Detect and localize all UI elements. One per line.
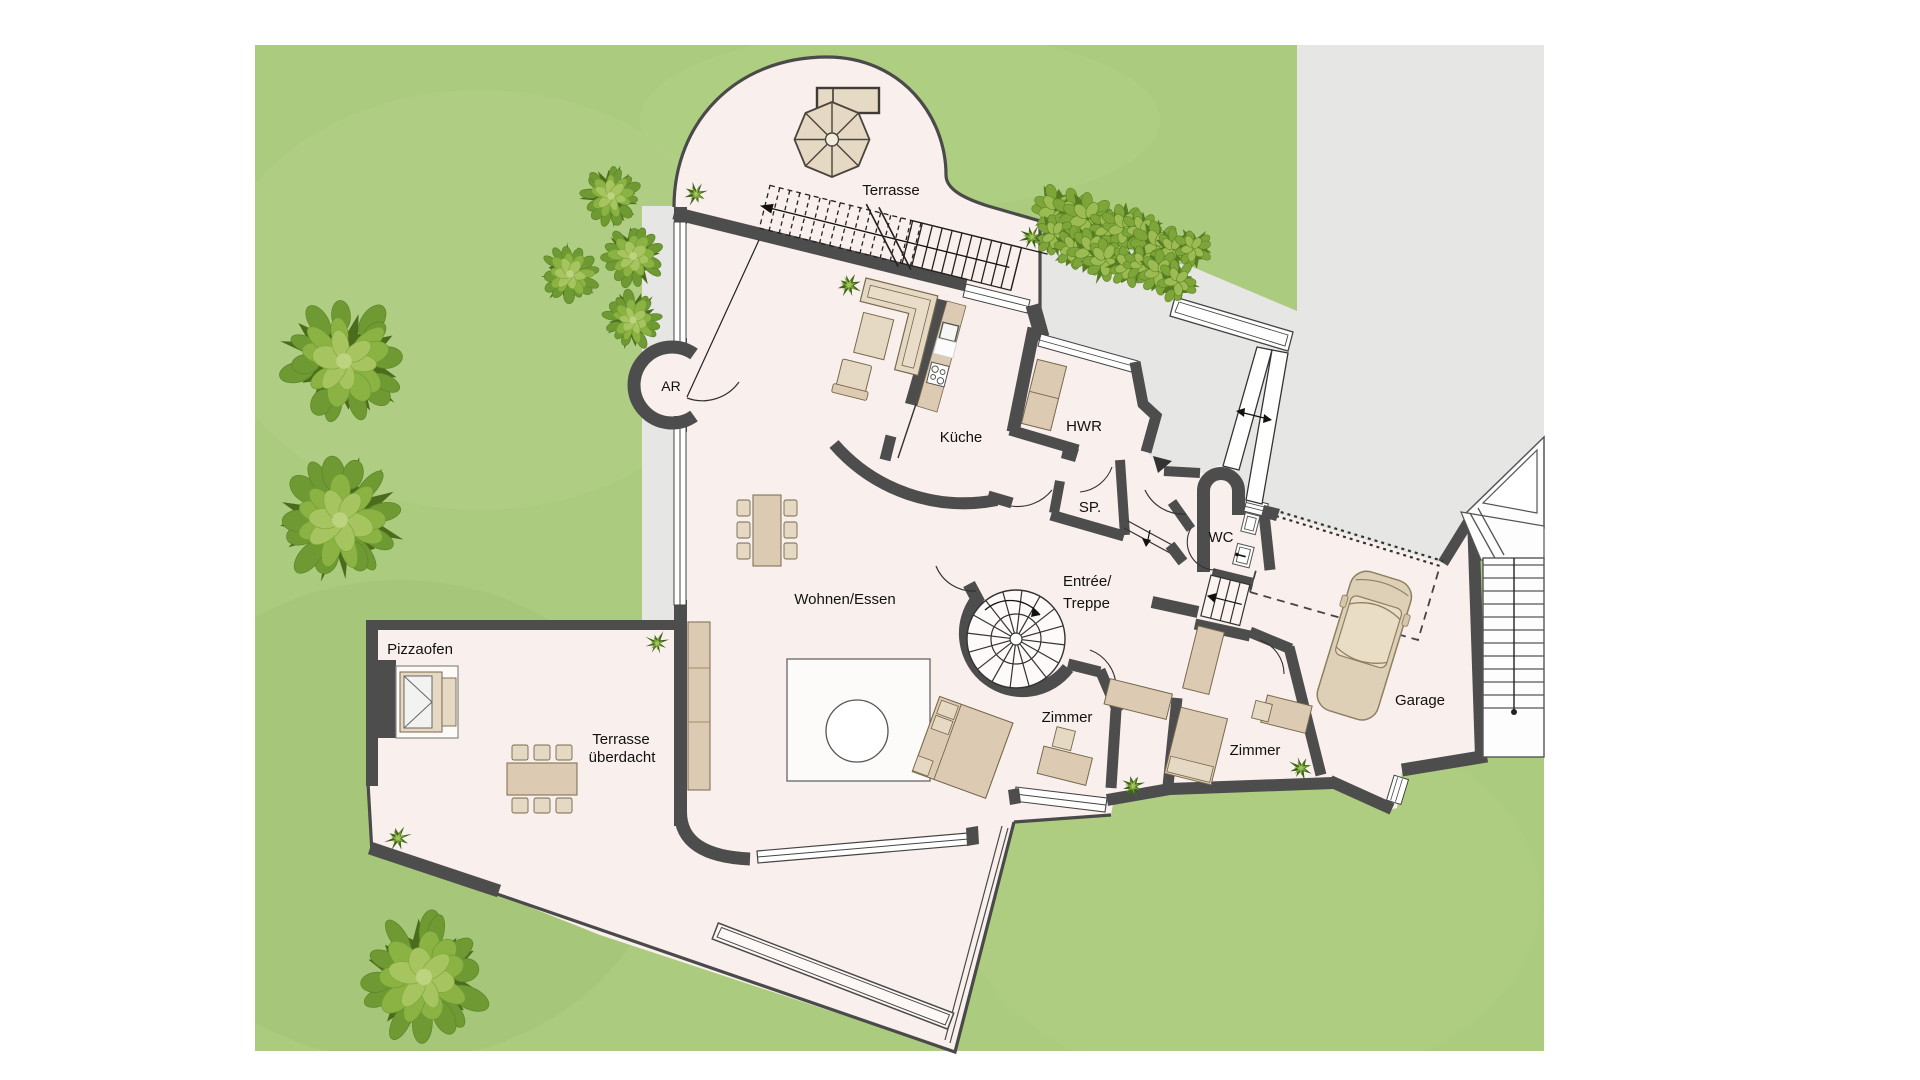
svg-text:Treppe: Treppe [1063, 595, 1110, 612]
svg-text:Wohnen/Essen: Wohnen/Essen [794, 591, 895, 608]
svg-text:Zimmer: Zimmer [1230, 742, 1281, 759]
svg-text:WC: WC [1209, 529, 1234, 546]
svg-text:HWR: HWR [1066, 418, 1102, 435]
svg-text:Küche: Küche [940, 429, 983, 446]
svg-text:überdacht: überdacht [589, 749, 657, 766]
svg-text:Garage: Garage [1395, 692, 1445, 709]
svg-text:Entrée/: Entrée/ [1063, 573, 1112, 590]
svg-text:Pizzaofen: Pizzaofen [387, 641, 453, 658]
svg-text:Zimmer: Zimmer [1042, 709, 1093, 726]
svg-text:Terrasse: Terrasse [862, 182, 920, 199]
svg-text:Terrasse: Terrasse [592, 731, 650, 748]
svg-text:SP.: SP. [1079, 499, 1101, 516]
svg-text:AR: AR [661, 378, 680, 394]
